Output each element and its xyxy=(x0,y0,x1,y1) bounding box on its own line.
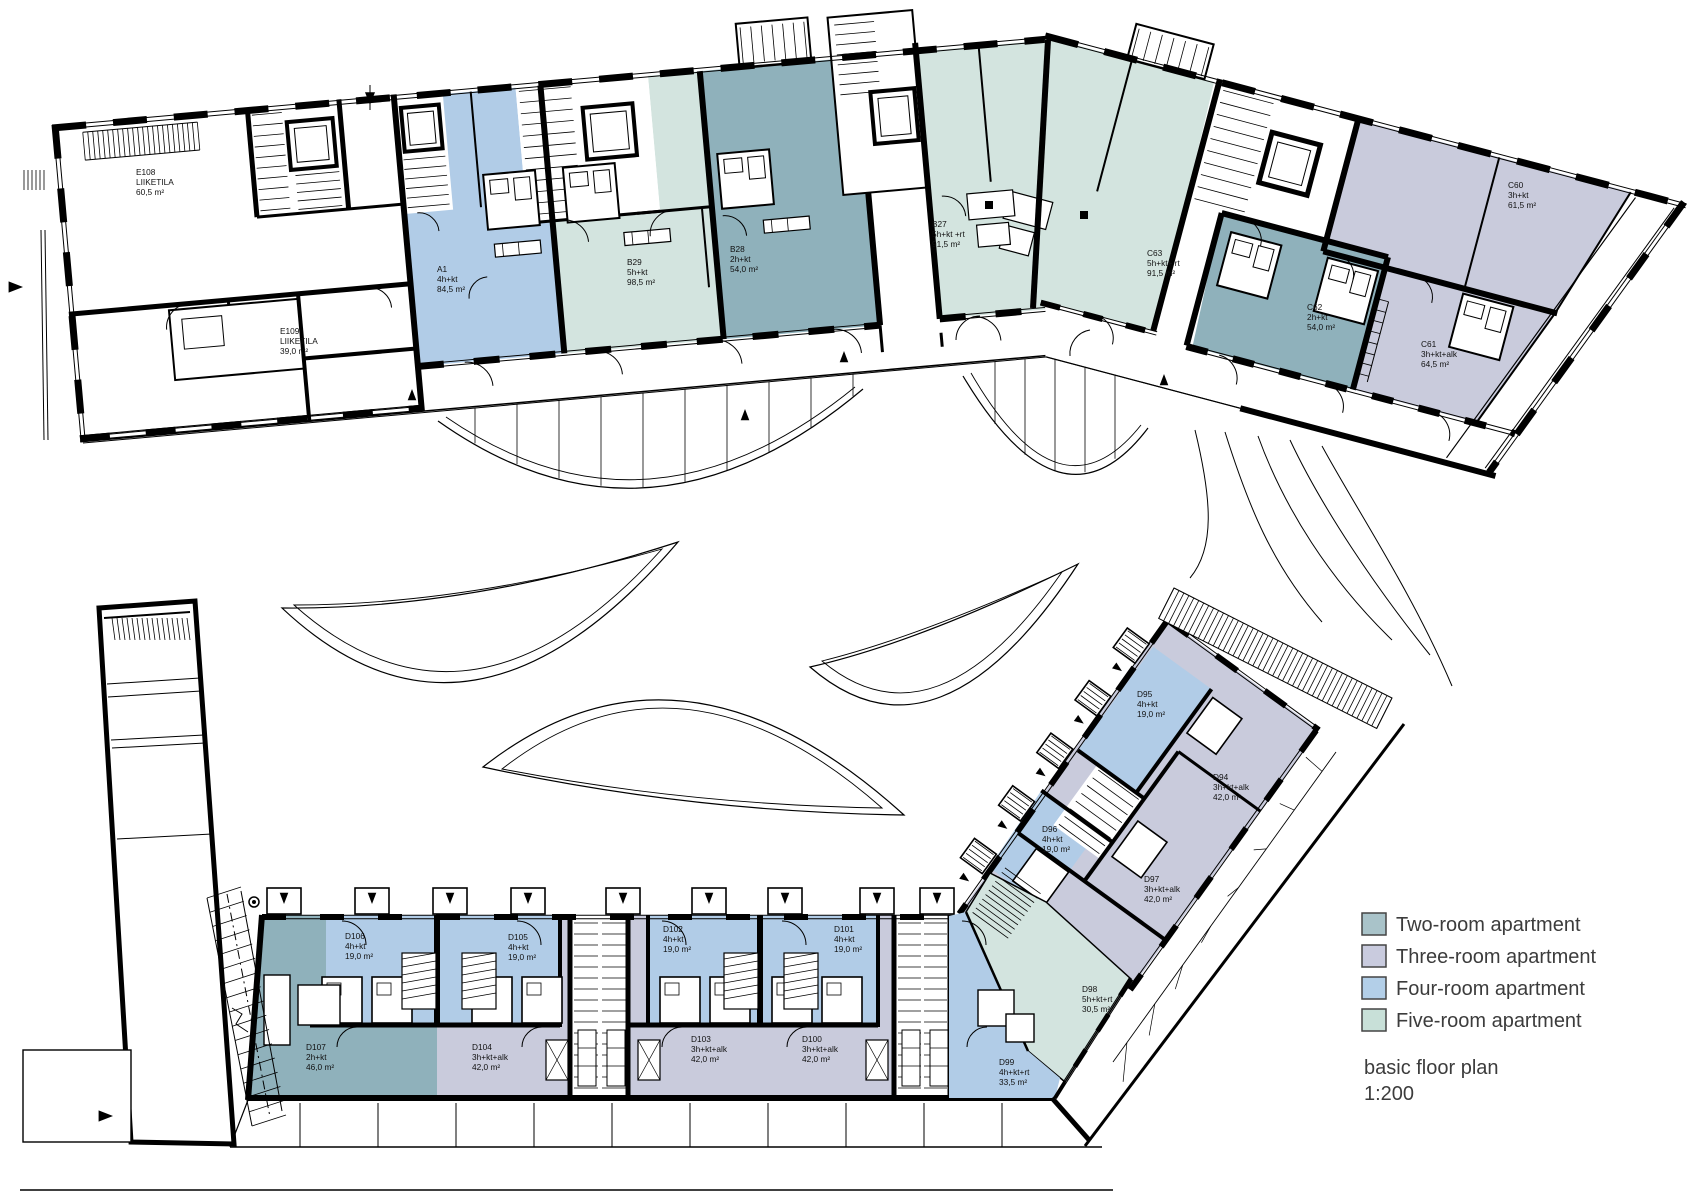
svg-text:Five-room apartment: Five-room apartment xyxy=(1396,1010,1582,1032)
svg-text:basic floor plan: basic floor plan xyxy=(1364,1057,1499,1079)
svg-text:1:200: 1:200 xyxy=(1364,1083,1414,1105)
svg-text:Two-room apartment: Two-room apartment xyxy=(1396,914,1581,936)
svg-text:Three-room apartment: Three-room apartment xyxy=(1396,946,1597,968)
svg-text:Four-room apartment: Four-room apartment xyxy=(1396,978,1585,1000)
